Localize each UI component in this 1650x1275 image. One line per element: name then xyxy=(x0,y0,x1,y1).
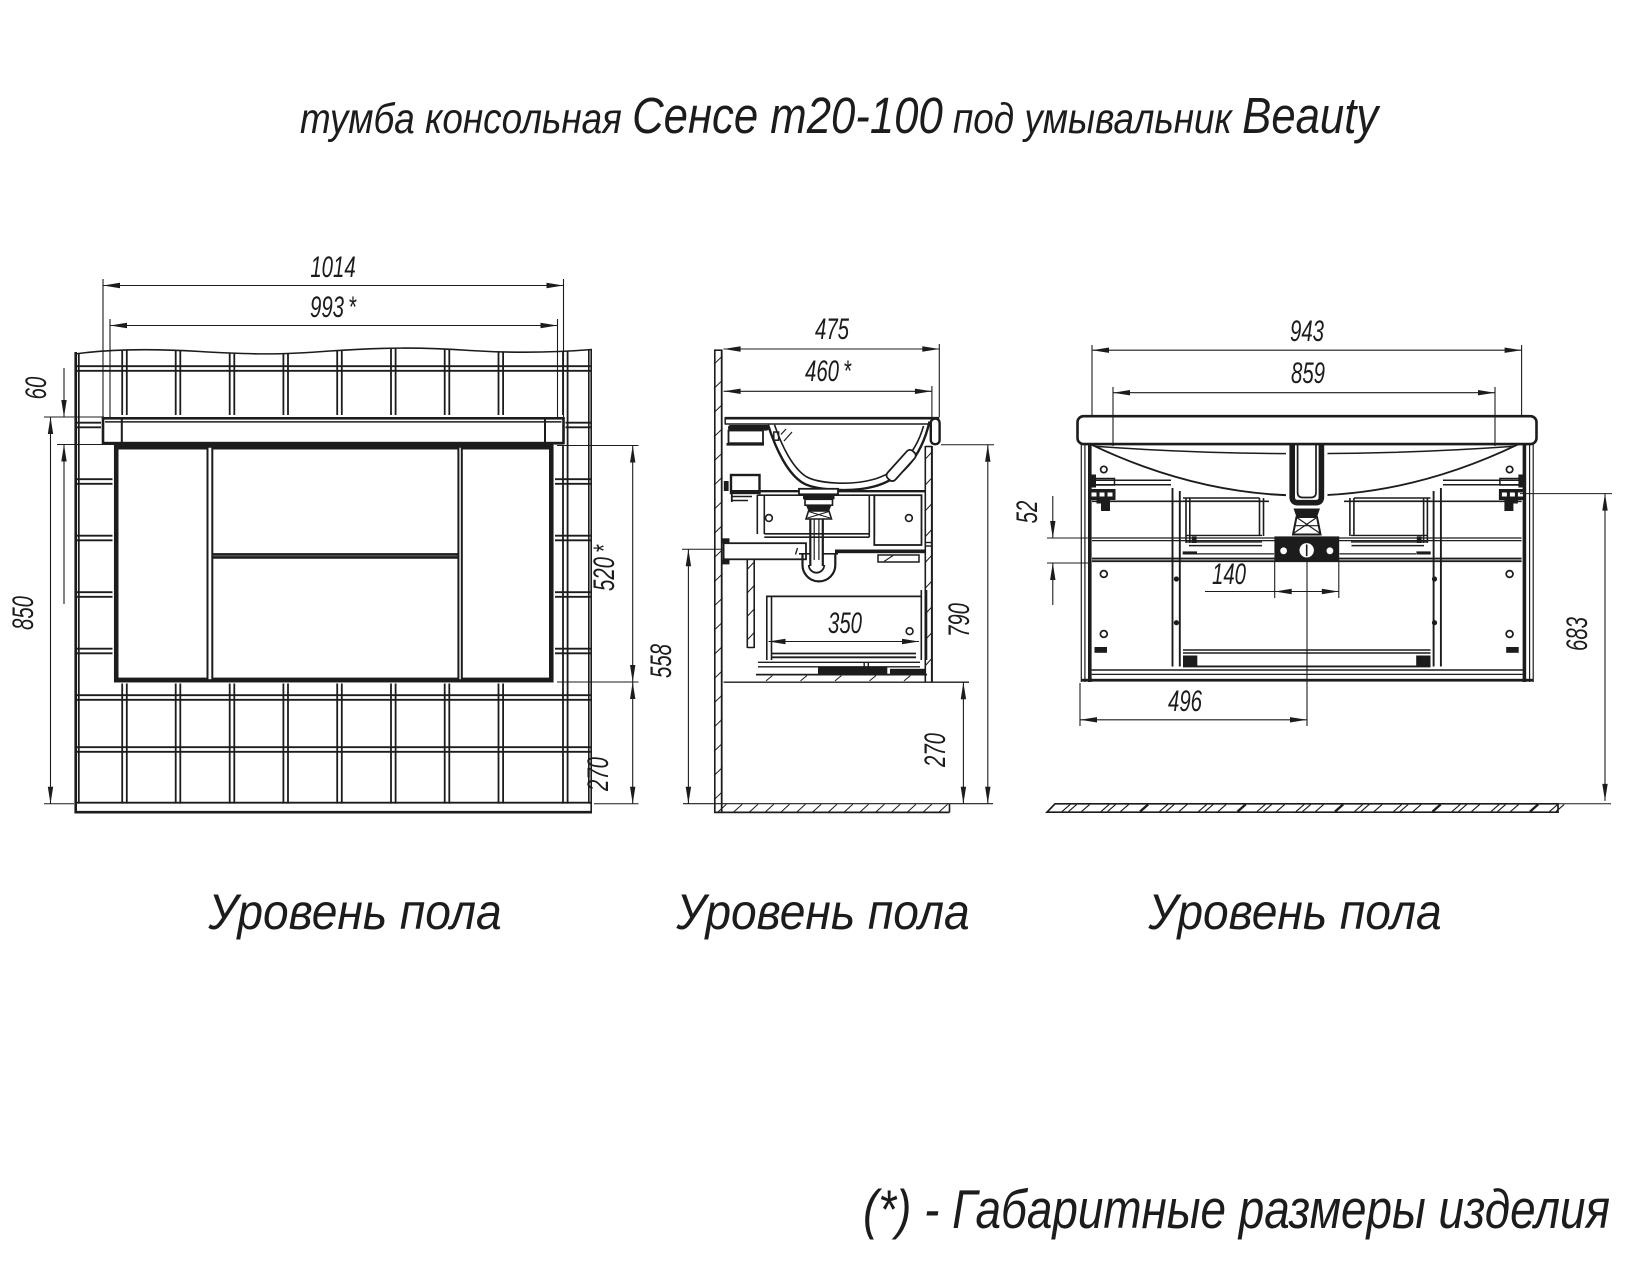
svg-text:Уровень пола: Уровень пола xyxy=(1147,884,1441,940)
svg-text:460 *: 460 * xyxy=(805,355,852,388)
svg-text:270: 270 xyxy=(582,756,615,791)
svg-text:270: 270 xyxy=(919,732,952,767)
svg-text:850: 850 xyxy=(7,595,40,630)
svg-text:859: 859 xyxy=(1291,357,1325,390)
svg-text:943: 943 xyxy=(1290,315,1325,348)
svg-text:683: 683 xyxy=(1561,616,1594,651)
svg-text:60: 60 xyxy=(20,376,53,399)
svg-text:тумба консольная Сенсе т20-10: тумба консольная Сенсе т20-100 под умыва… xyxy=(300,88,1381,145)
svg-text:1014: 1014 xyxy=(310,251,355,284)
svg-text:(*) - Габаритные размеры издел: (*) - Габаритные размеры изделия xyxy=(863,1178,1610,1240)
svg-text:993 *: 993 * xyxy=(310,291,357,324)
svg-text:350: 350 xyxy=(828,607,863,640)
svg-text:496: 496 xyxy=(1168,685,1203,718)
svg-text:520 *: 520 * xyxy=(588,544,621,591)
svg-text:Уровень пола: Уровень пола xyxy=(675,884,969,940)
svg-text:475: 475 xyxy=(815,313,850,346)
svg-text:790: 790 xyxy=(943,602,976,637)
svg-text:Уровень пола: Уровень пола xyxy=(207,884,501,940)
svg-text:558: 558 xyxy=(645,643,678,678)
svg-text:140: 140 xyxy=(1212,558,1247,591)
svg-text:52: 52 xyxy=(1011,501,1044,524)
